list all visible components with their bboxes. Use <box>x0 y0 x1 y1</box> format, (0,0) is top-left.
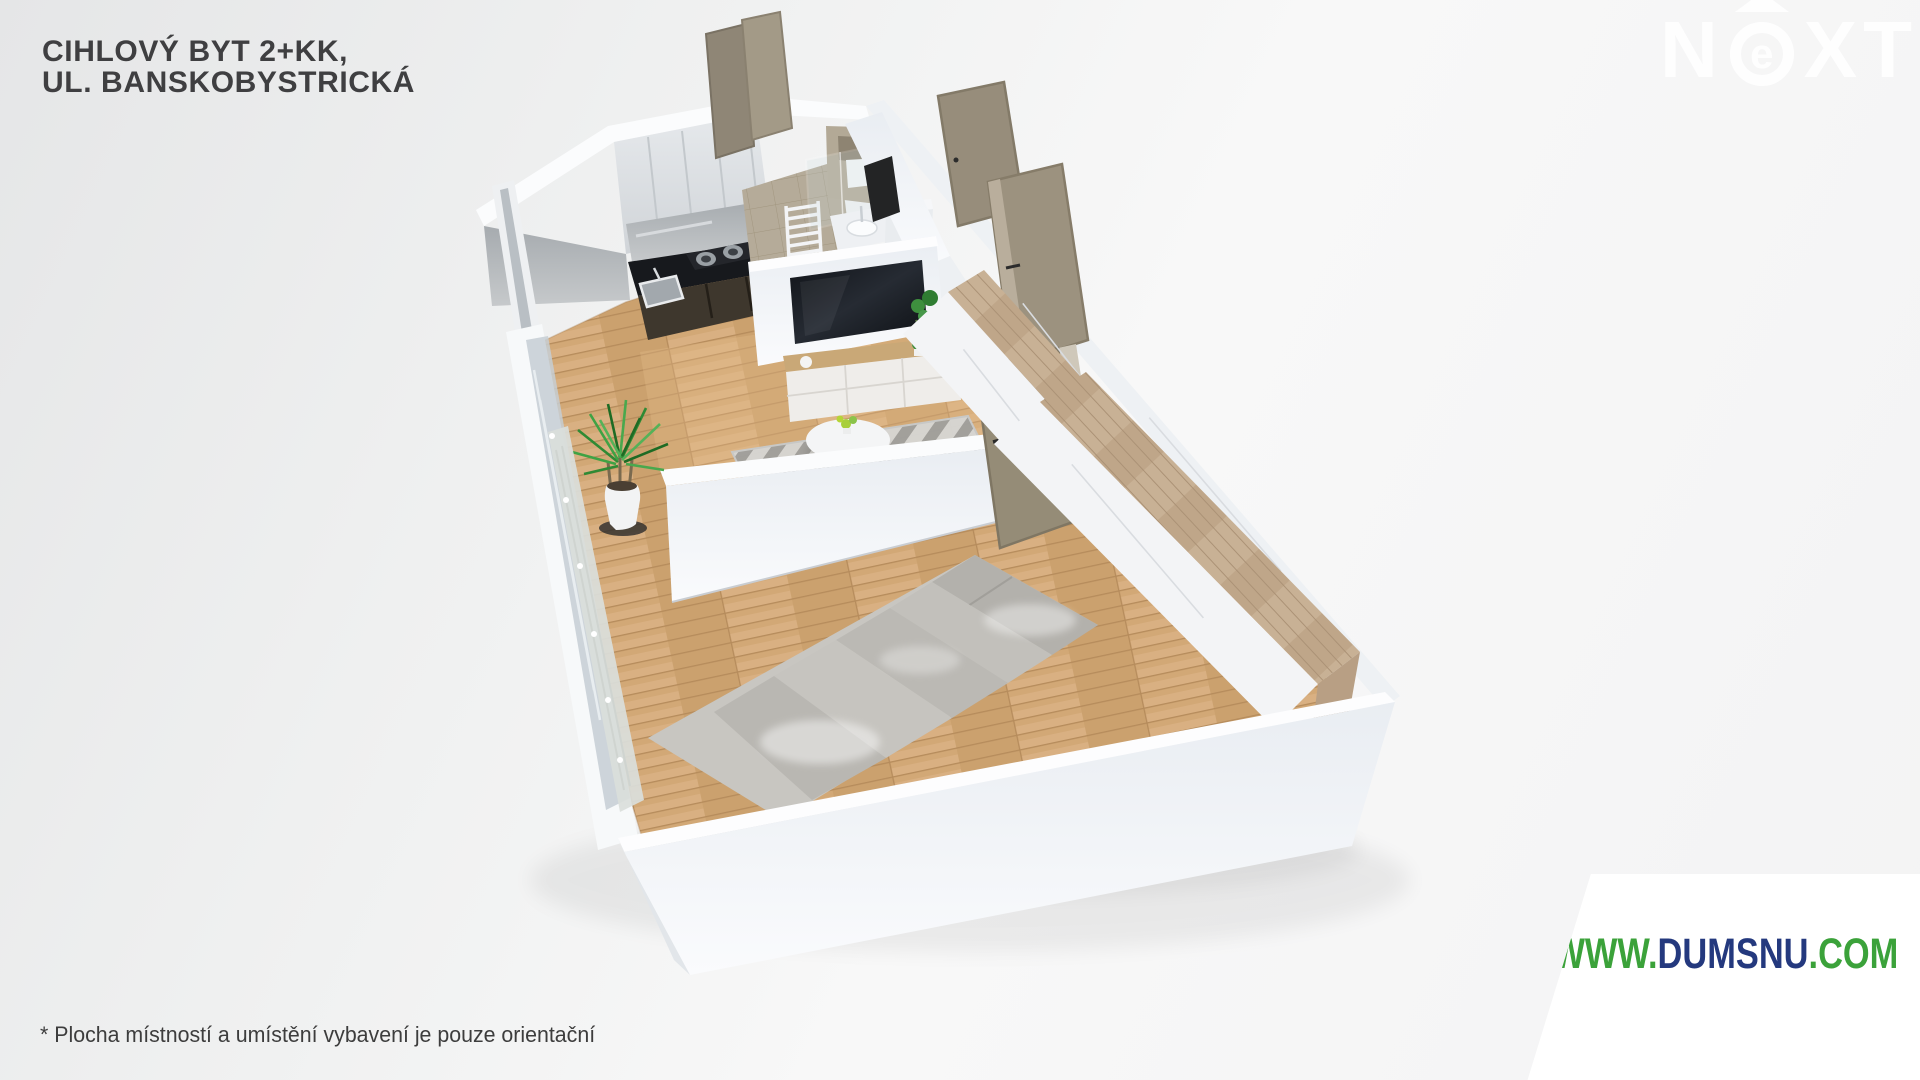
watermark-tld: .COM <box>1808 930 1898 978</box>
logo-e-badge: e <box>1730 22 1794 86</box>
website-watermark: WWW.DUMSNU.COM <box>1552 930 1898 979</box>
disclaimer-note: * Plocha místností a umístění vybavení j… <box>40 1022 595 1048</box>
title-line-2: UL. BANSKOBYSTRICKÁ <box>42 67 415 98</box>
next-logo: N e XT <box>1660 10 1918 90</box>
door-leaf-2 <box>742 12 792 140</box>
logo-letter-n: N <box>1660 10 1724 90</box>
triangle-up-icon <box>1735 0 1789 12</box>
page-title: CIHLOVÝ BYT 2+KK, UL. BANSKOBYSTRICKÁ <box>42 36 415 98</box>
watermark-domain: DUMSNU <box>1657 930 1808 978</box>
bed-highlight <box>760 720 880 764</box>
logo-letter-e: e <box>1730 22 1794 86</box>
vase <box>800 356 812 368</box>
title-line-1: CIHLOVÝ BYT 2+KK, <box>42 36 415 67</box>
logo-letters-xt: XT <box>1804 10 1918 90</box>
bathroom-faucet <box>861 206 862 222</box>
page: CIHLOVÝ BYT 2+KK, UL. BANSKOBYSTRICKÁ N … <box>0 0 1920 1080</box>
bathroom-sink <box>847 220 877 236</box>
